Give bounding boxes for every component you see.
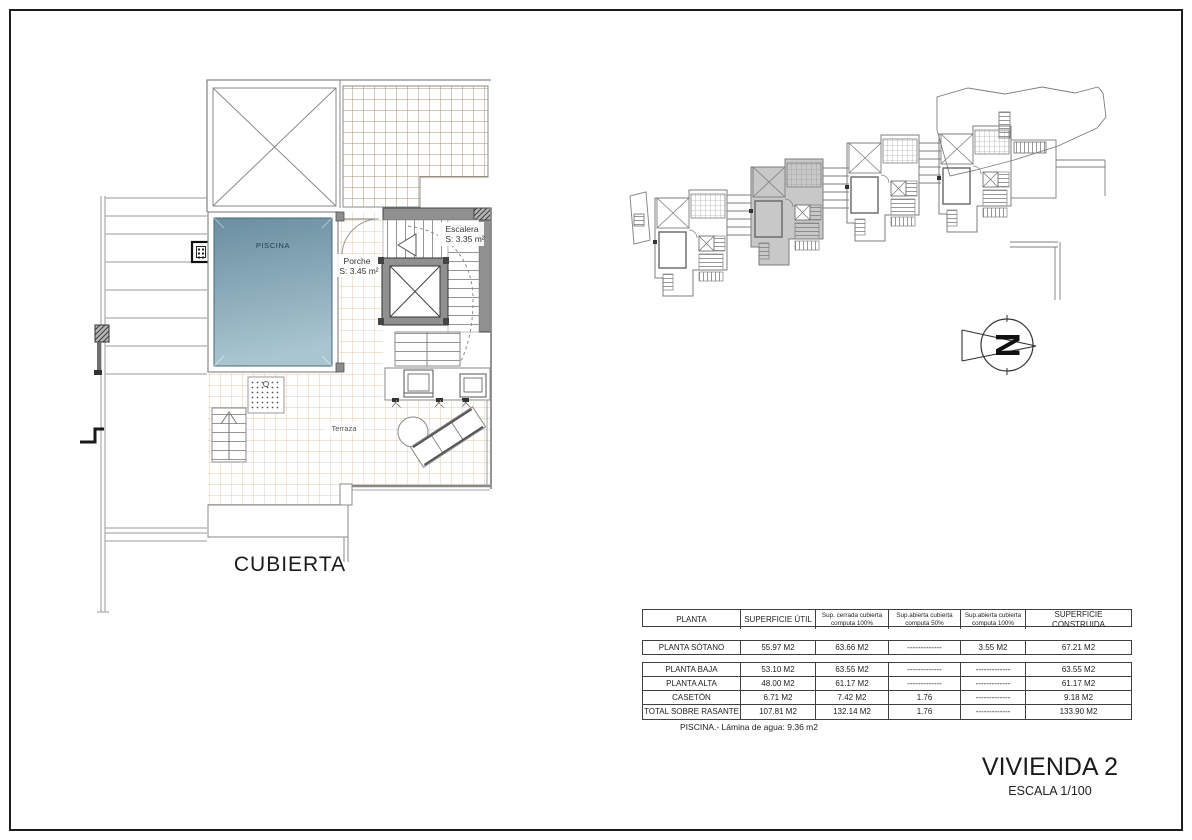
table-header-row: PLANTA SUPERFICIE ÚTIL Sup. cerrada cubi… — [642, 609, 1132, 627]
areas-table: PLANTA SUPERFICIE ÚTIL Sup. cerrada cubi… — [642, 609, 1132, 720]
porch-area-label: S: 3.45 m² — [339, 266, 378, 276]
north-letter: N — [988, 333, 1026, 358]
table-cell: ------------- — [961, 705, 1026, 719]
table-header-cell: Sup. cerrada cubiertacomputa 100% — [816, 610, 889, 629]
table-header-cell: PLANTA — [643, 610, 741, 629]
table-cell: CASETÓN — [643, 691, 741, 704]
boundary-corner-mark — [80, 429, 104, 442]
pool: PISCINA — [208, 212, 338, 372]
table-header-cell: SUPERFICIE ÚTIL — [741, 610, 816, 629]
table-cell: 7.42 M2 — [816, 691, 889, 704]
table-cell: 107.81 M2 — [741, 705, 816, 719]
terrace-label: Terraza — [331, 424, 357, 433]
table-cell: PLANTA SÓTANO — [643, 641, 741, 654]
scale-label: ESCALA 1/100 — [950, 784, 1150, 798]
table-cell: PLANTA BAJA — [643, 663, 741, 676]
table-cell: TOTAL SOBRE RASANTE — [643, 705, 741, 719]
table-row: PLANTA ALTA 48.00 M2 61.17 M2 ----------… — [643, 677, 1131, 691]
table-cell: 132.14 M2 — [816, 705, 889, 719]
drawing-sheet: PISCINA Porche S: 3.45 m² — [0, 0, 1192, 840]
table-cell: 61.17 M2 — [1026, 677, 1131, 690]
site-unit-4 — [937, 126, 1011, 232]
stairs-area-label: S: 3.35 m² — [445, 234, 484, 244]
table-header-cell: Sup.abierta cubiertacomputa 50% — [889, 610, 961, 629]
shower-drain — [264, 382, 269, 387]
stairs-label: Escalera — [445, 224, 478, 234]
table-cell: 48.00 M2 — [741, 677, 816, 690]
site-plan — [630, 87, 1106, 300]
pool-label: PISCINA — [256, 241, 290, 250]
table-cell: 67.21 M2 — [1026, 641, 1131, 654]
table-header-cell: SUPERFICIE CONSTRUIDA — [1026, 610, 1131, 629]
site-steps-1 — [727, 195, 753, 235]
spa-control-box — [192, 242, 210, 262]
floor-plan: PISCINA Porche S: 3.45 m² — [80, 80, 491, 612]
table-header-cell: Sup.abierta cubiertacomputa 100% — [961, 610, 1026, 629]
site-unit-2-highlighted — [749, 159, 823, 265]
project-title: VIVIENDA 2 — [950, 753, 1150, 782]
table-cell: 1.76 — [889, 691, 961, 704]
table-cell: 9.18 M2 — [1026, 691, 1131, 704]
plan-title: CUBIERTA — [205, 553, 375, 577]
wall-pier — [95, 325, 109, 342]
neighbor-structure — [80, 196, 210, 612]
table-cell: PLANTA ALTA — [643, 677, 741, 690]
void-cross — [213, 88, 336, 206]
porch-label: Porche — [344, 256, 371, 266]
table-cell: 63.55 M2 — [1026, 663, 1131, 676]
table-cell: ------------- — [889, 641, 961, 654]
table-cell: ------------- — [961, 677, 1026, 690]
pergola-grid — [343, 86, 488, 207]
table-cell: 53.10 M2 — [741, 663, 816, 676]
north-arrow: N — [962, 315, 1036, 375]
table-cell: 1.76 — [889, 705, 961, 719]
table-row: PLANTA SÓTANO 55.97 M2 63.66 M2 --------… — [642, 640, 1132, 655]
table-row: PLANTA BAJA 53.10 M2 63.55 M2 ----------… — [643, 663, 1131, 677]
porch: Porche S: 3.45 m² — [336, 212, 383, 372]
table-body: PLANTA BAJA 53.10 M2 63.55 M2 ----------… — [642, 662, 1132, 720]
pool-footnote: PISCINA.- Lámina de agua: 9.36 m2 — [680, 722, 818, 732]
table-cell: 133.90 M2 — [1026, 705, 1131, 719]
table-cell: ------------- — [961, 663, 1026, 676]
table-cell: 55.97 M2 — [741, 641, 816, 654]
table-cell: 3.55 M2 — [961, 641, 1026, 654]
table-cell: ------------- — [889, 663, 961, 676]
terrace-step-notch — [340, 484, 352, 505]
table-cell: ------------- — [889, 677, 961, 690]
table-row: CASETÓN 6.71 M2 7.42 M2 1.76 -----------… — [643, 691, 1131, 705]
table-cell: ------------- — [961, 691, 1026, 704]
site-unit-3 — [845, 135, 919, 241]
table-cell: 63.55 M2 — [816, 663, 889, 676]
table-row: TOTAL SOBRE RASANTE 107.81 M2 132.14 M2 … — [643, 705, 1131, 719]
table-cell: 61.17 M2 — [816, 677, 889, 690]
table-cell: 63.66 M2 — [816, 641, 889, 654]
site-unit-1 — [653, 190, 727, 296]
table-cell: 6.71 M2 — [741, 691, 816, 704]
